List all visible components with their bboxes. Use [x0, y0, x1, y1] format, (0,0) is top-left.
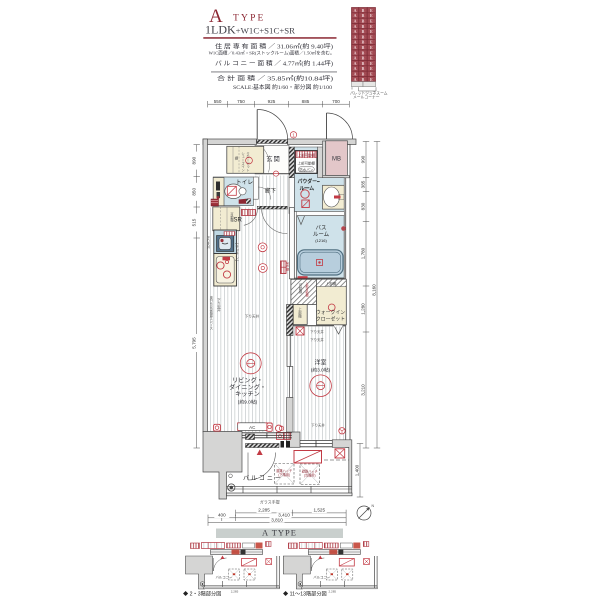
svg-text:830: 830 — [361, 202, 366, 210]
svg-text:下り天井: 下り天井 — [216, 298, 220, 312]
svg-text:890: 890 — [191, 156, 196, 164]
svg-text:515: 515 — [191, 218, 196, 226]
svg-text:TYPE: TYPE — [233, 14, 266, 24]
svg-text:◆ 11〜13階部分図: ◆ 11〜13階部分図 — [283, 590, 327, 598]
svg-text:棚: 棚 — [234, 155, 238, 160]
svg-text:バ ル コ ニ ー 面 積 ／ 4.77㎡(約 1.44坪): バ ル コ ニ ー 面 積 ／ 4.77㎡(約 1.44坪) — [215, 59, 333, 67]
svg-text:(当階用): (当階用) — [304, 473, 316, 478]
svg-text:400: 400 — [218, 513, 226, 518]
svg-text:990: 990 — [361, 155, 366, 163]
svg-text:850: 850 — [191, 188, 196, 196]
svg-text:E: E — [370, 8, 373, 13]
svg-text:吊戸棚: 吊戸棚 — [286, 262, 290, 272]
svg-text:925: 925 — [268, 99, 276, 104]
svg-text:550: 550 — [214, 99, 222, 104]
svg-text:防水パン: 防水パン — [299, 167, 314, 172]
svg-text:1,400: 1,400 — [355, 464, 360, 476]
svg-text:奥行450冷蔵庫スペース: 奥行450冷蔵庫スペース — [208, 295, 212, 331]
svg-text:上部可動棚: 上部可動棚 — [305, 281, 309, 298]
svg-text:リビング・: リビング・ — [232, 377, 263, 385]
svg-text:1,525: 1,525 — [314, 508, 326, 513]
svg-text:5,795: 5,795 — [191, 337, 196, 349]
svg-text:(1216): (1216) — [315, 238, 327, 243]
svg-text:パウダー━: パウダー━ — [298, 178, 321, 185]
svg-text:下り天井: 下り天井 — [310, 337, 324, 342]
svg-text:◆ 2・3階部分図: ◆ 2・3階部分図 — [183, 590, 221, 598]
svg-text:3,810: 3,810 — [271, 517, 283, 522]
svg-text:ウォークイン: ウォークイン — [316, 309, 345, 316]
svg-text:A TYPE: A TYPE — [262, 528, 297, 538]
svg-text:1,280: 1,280 — [361, 303, 366, 315]
svg-text:700: 700 — [332, 99, 340, 104]
svg-text:B: B — [362, 8, 365, 13]
svg-text:上部可動棚: 上部可動棚 — [298, 160, 316, 165]
svg-text:シューズイン: シューズイン — [240, 152, 244, 172]
svg-text:下り天井: 下り天井 — [310, 329, 324, 334]
svg-text:(約3.0帖): (約3.0帖) — [311, 366, 331, 373]
svg-text:SCALE:基本図 約1/60・部分図 約1/100: SCALE:基本図 約1/60・部分図 約1/100 — [233, 83, 332, 91]
svg-text:洋室: 洋室 — [314, 359, 326, 367]
svg-text:1,780: 1,780 — [361, 247, 366, 259]
svg-text:885: 885 — [302, 99, 310, 104]
svg-text:バルコニー: バルコニー — [243, 475, 283, 482]
svg-text:可動棚: 可動棚 — [298, 283, 302, 294]
svg-text:1LDK+W1C+S1C+SR: 1LDK+W1C+S1C+SR — [205, 23, 295, 37]
svg-text:合 計 面 積 ／ 35.85㎡(約10.84坪): 合 計 面 積 ／ 35.85㎡(約10.84坪) — [217, 74, 333, 82]
svg-text:SR: SR — [234, 218, 243, 224]
svg-text:キッチン: キッチン — [235, 391, 260, 398]
svg-text:住 居 専 有 面 積 ／ 31.06㎡(約 9.40坪): 住 居 専 有 面 積 ／ 31.06㎡(約 9.40坪) — [215, 43, 333, 51]
svg-text:クローゼット: クローゼット — [316, 316, 345, 323]
svg-text:8,160: 8,160 — [372, 284, 377, 296]
svg-text:バス: バス — [315, 225, 326, 232]
svg-text:385: 385 — [361, 180, 366, 188]
svg-text:2,285: 2,285 — [258, 508, 270, 513]
svg-text:上部可動棚: 上部可動棚 — [298, 153, 316, 158]
svg-text:上部棚: 上部棚 — [297, 306, 301, 318]
svg-text:AC: AC — [249, 425, 256, 430]
svg-text:W1C面積／0.43㎡・SR(ストックルーム)面積／1.50: W1C面積／0.43㎡・SR(ストックルーム)面積／1.50㎡を含む。 — [209, 50, 335, 57]
svg-text:メールコーナー: メールコーナー — [353, 95, 380, 100]
svg-text:下り天井: 下り天井 — [206, 236, 210, 250]
svg-text:(約9.0帖): (約9.0帖) — [238, 399, 258, 406]
svg-text:(下階用): (下階用) — [278, 472, 290, 477]
svg-text:750: 750 — [237, 99, 245, 104]
svg-text:2,285: 2,285 — [231, 590, 239, 594]
svg-text:3,210: 3,210 — [361, 384, 366, 396]
svg-text:ガラス手摺: ガラス手摺 — [260, 498, 280, 504]
svg-text:MB: MB — [332, 157, 341, 163]
svg-text:下り天井: 下り天井 — [245, 314, 260, 319]
svg-text:[キッチン]: [キッチン] — [235, 243, 240, 261]
svg-text:A: A — [354, 8, 357, 13]
svg-text:下り天井: 下り天井 — [311, 423, 325, 428]
svg-text:バルコニー: バルコニー — [216, 576, 233, 580]
svg-text:上部棚: 上部棚 — [326, 281, 337, 286]
